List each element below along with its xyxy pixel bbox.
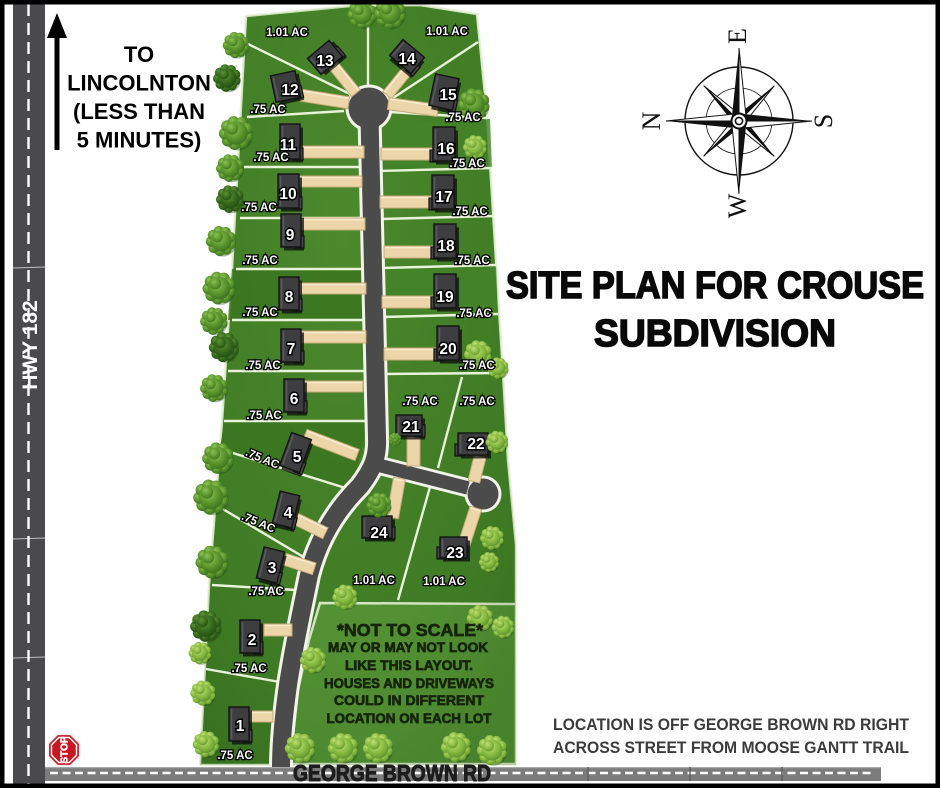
svg-text:.75 AC: .75 AC [402,396,437,408]
svg-text:STOP: STOP [59,736,70,763]
svg-text:.75 AC: .75 AC [452,206,487,218]
svg-text:SUBDIVISION: SUBDIVISION [594,313,836,355]
svg-text:.75 AC: .75 AC [248,586,283,598]
svg-text:24: 24 [370,525,388,542]
svg-text:1.01 AC: 1.01 AC [426,26,468,38]
svg-text:18: 18 [437,238,455,255]
svg-text:.75 AC: .75 AC [459,396,494,408]
svg-text:.75 AC: .75 AC [246,410,281,422]
svg-text:20: 20 [439,341,456,358]
svg-text:19: 19 [436,289,454,306]
svg-text:23: 23 [446,545,464,562]
svg-text:15: 15 [439,87,457,104]
svg-text:HWY 182: HWY 182 [19,300,42,390]
svg-text:10: 10 [279,186,296,203]
svg-text:S: S [809,114,838,128]
svg-text:.75 AC: .75 AC [245,360,280,372]
svg-text:LOCATION IS OFF GEORGE BROWN R: LOCATION IS OFF GEORGE BROWN RD RIGHT [553,716,909,734]
svg-text:.75 AC: .75 AC [456,308,491,320]
svg-text:5: 5 [293,449,302,466]
svg-text:13: 13 [316,53,334,70]
svg-text:.75 AC: .75 AC [253,152,288,164]
svg-text:7: 7 [287,341,296,358]
svg-text:N: N [637,111,666,130]
svg-text:16: 16 [437,141,455,158]
svg-text:1: 1 [236,718,245,735]
svg-text:1.01 AC: 1.01 AC [353,575,395,587]
svg-text:SITE PLAN FOR CROUSE: SITE PLAN FOR CROUSE [506,265,924,307]
svg-text:LIKE THIS LAYOUT.: LIKE THIS LAYOUT. [345,658,473,673]
svg-text:.75 AC: .75 AC [217,750,252,762]
svg-text:.75 AC: .75 AC [241,202,276,214]
svg-text:22: 22 [467,436,484,453]
svg-text:.75 AC: .75 AC [242,255,277,267]
svg-text:.75 AC: .75 AC [459,360,494,372]
svg-text:17: 17 [435,189,452,206]
svg-text:COULD IN DIFFERENT: COULD IN DIFFERENT [334,693,485,708]
svg-text:6: 6 [290,391,299,408]
svg-text:1.01 AC: 1.01 AC [423,576,465,588]
svg-text:MAY OR MAY NOT LOOK: MAY OR MAY NOT LOOK [328,640,488,655]
svg-text:9: 9 [286,227,295,244]
svg-text:E: E [723,28,752,44]
svg-text:.75 AC: .75 AC [250,104,285,116]
svg-text:W: W [723,193,752,218]
svg-text:2: 2 [248,632,257,649]
svg-text:*NOT TO SCALE*: *NOT TO SCALE* [337,620,483,640]
svg-text:.75 AC: .75 AC [231,663,266,675]
svg-text:12: 12 [281,82,298,99]
svg-text:ACROSS STREET FROM MOOSE GANTT: ACROSS STREET FROM MOOSE GANTT TRAIL [553,739,909,757]
svg-text:21: 21 [402,419,420,436]
svg-text:LOCATION ON EACH LOT: LOCATION ON EACH LOT [327,711,493,726]
svg-text:.75 AC: .75 AC [242,307,277,319]
svg-text:HOUSES AND DRIVEWAYS: HOUSES AND DRIVEWAYS [324,676,494,691]
svg-text:14: 14 [398,51,416,68]
svg-text:1.01 AC: 1.01 AC [266,27,308,39]
svg-text:.75 AC: .75 AC [449,158,484,170]
svg-text:.75 AC: .75 AC [454,255,489,267]
svg-text:.75 AC: .75 AC [445,112,480,124]
svg-text:4: 4 [284,505,293,522]
svg-text:8: 8 [285,289,294,306]
svg-text:GEORGE BROWN RD: GEORGE BROWN RD [293,760,491,786]
svg-text:3: 3 [268,560,277,577]
